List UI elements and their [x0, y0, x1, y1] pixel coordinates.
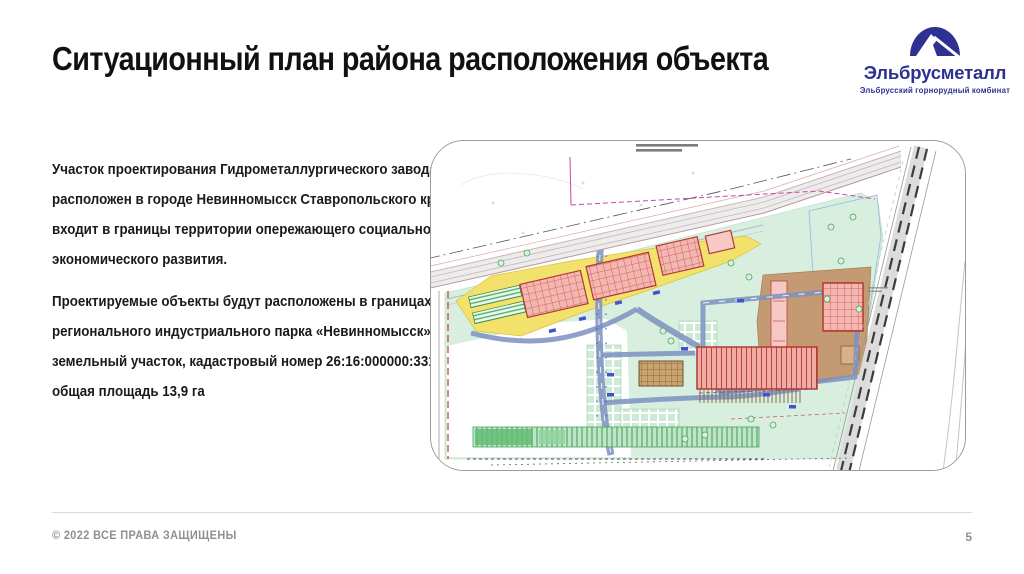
paragraph-line: экономического развития.: [52, 245, 448, 275]
auxiliary-building-tan: [639, 361, 683, 386]
elbrus-mountain-icon: [907, 20, 963, 58]
paragraph-gap: [52, 275, 448, 287]
paragraph-line: земельный участок, кадастровый номер 26:…: [52, 347, 448, 377]
paragraph-line: общая площадь 13,9 га: [52, 377, 448, 407]
logo-company-name: Эльбрусметалл: [858, 62, 1012, 84]
site-plan-card: [430, 140, 966, 471]
paragraph-line: Проектируемые объекты будут расположены …: [52, 287, 448, 317]
long-green-strip-building: [473, 427, 759, 447]
paragraph-line: расположен в городе Невинномысск Ставроп…: [52, 185, 448, 215]
paragraph-line: Участок проектирования Гидрометаллургиче…: [52, 155, 448, 185]
company-logo: Эльбрусметалл Эльбрусский горнорудный ко…: [858, 20, 1012, 95]
page-number: 5: [965, 530, 972, 544]
description-text: Участок проектирования Гидрометаллургиче…: [52, 155, 448, 407]
copyright-text: © 2022 ВСЕ ПРАВА ЗАЩИЩЕНЫ: [52, 530, 237, 542]
paragraph-line: регионального индустриального парка «Нев…: [52, 317, 448, 347]
site-plan-map: [431, 141, 966, 471]
main-production-building: [697, 347, 817, 403]
footer-divider: [52, 512, 972, 513]
paragraph-line: входит в границы территории опережающего…: [52, 215, 448, 245]
presentation-slide: Ситуационный план района расположения об…: [0, 0, 1024, 574]
logo-tagline: Эльбрусский горнорудный комбинат: [858, 86, 1012, 95]
page-title: Ситуационный план района расположения об…: [52, 40, 768, 78]
